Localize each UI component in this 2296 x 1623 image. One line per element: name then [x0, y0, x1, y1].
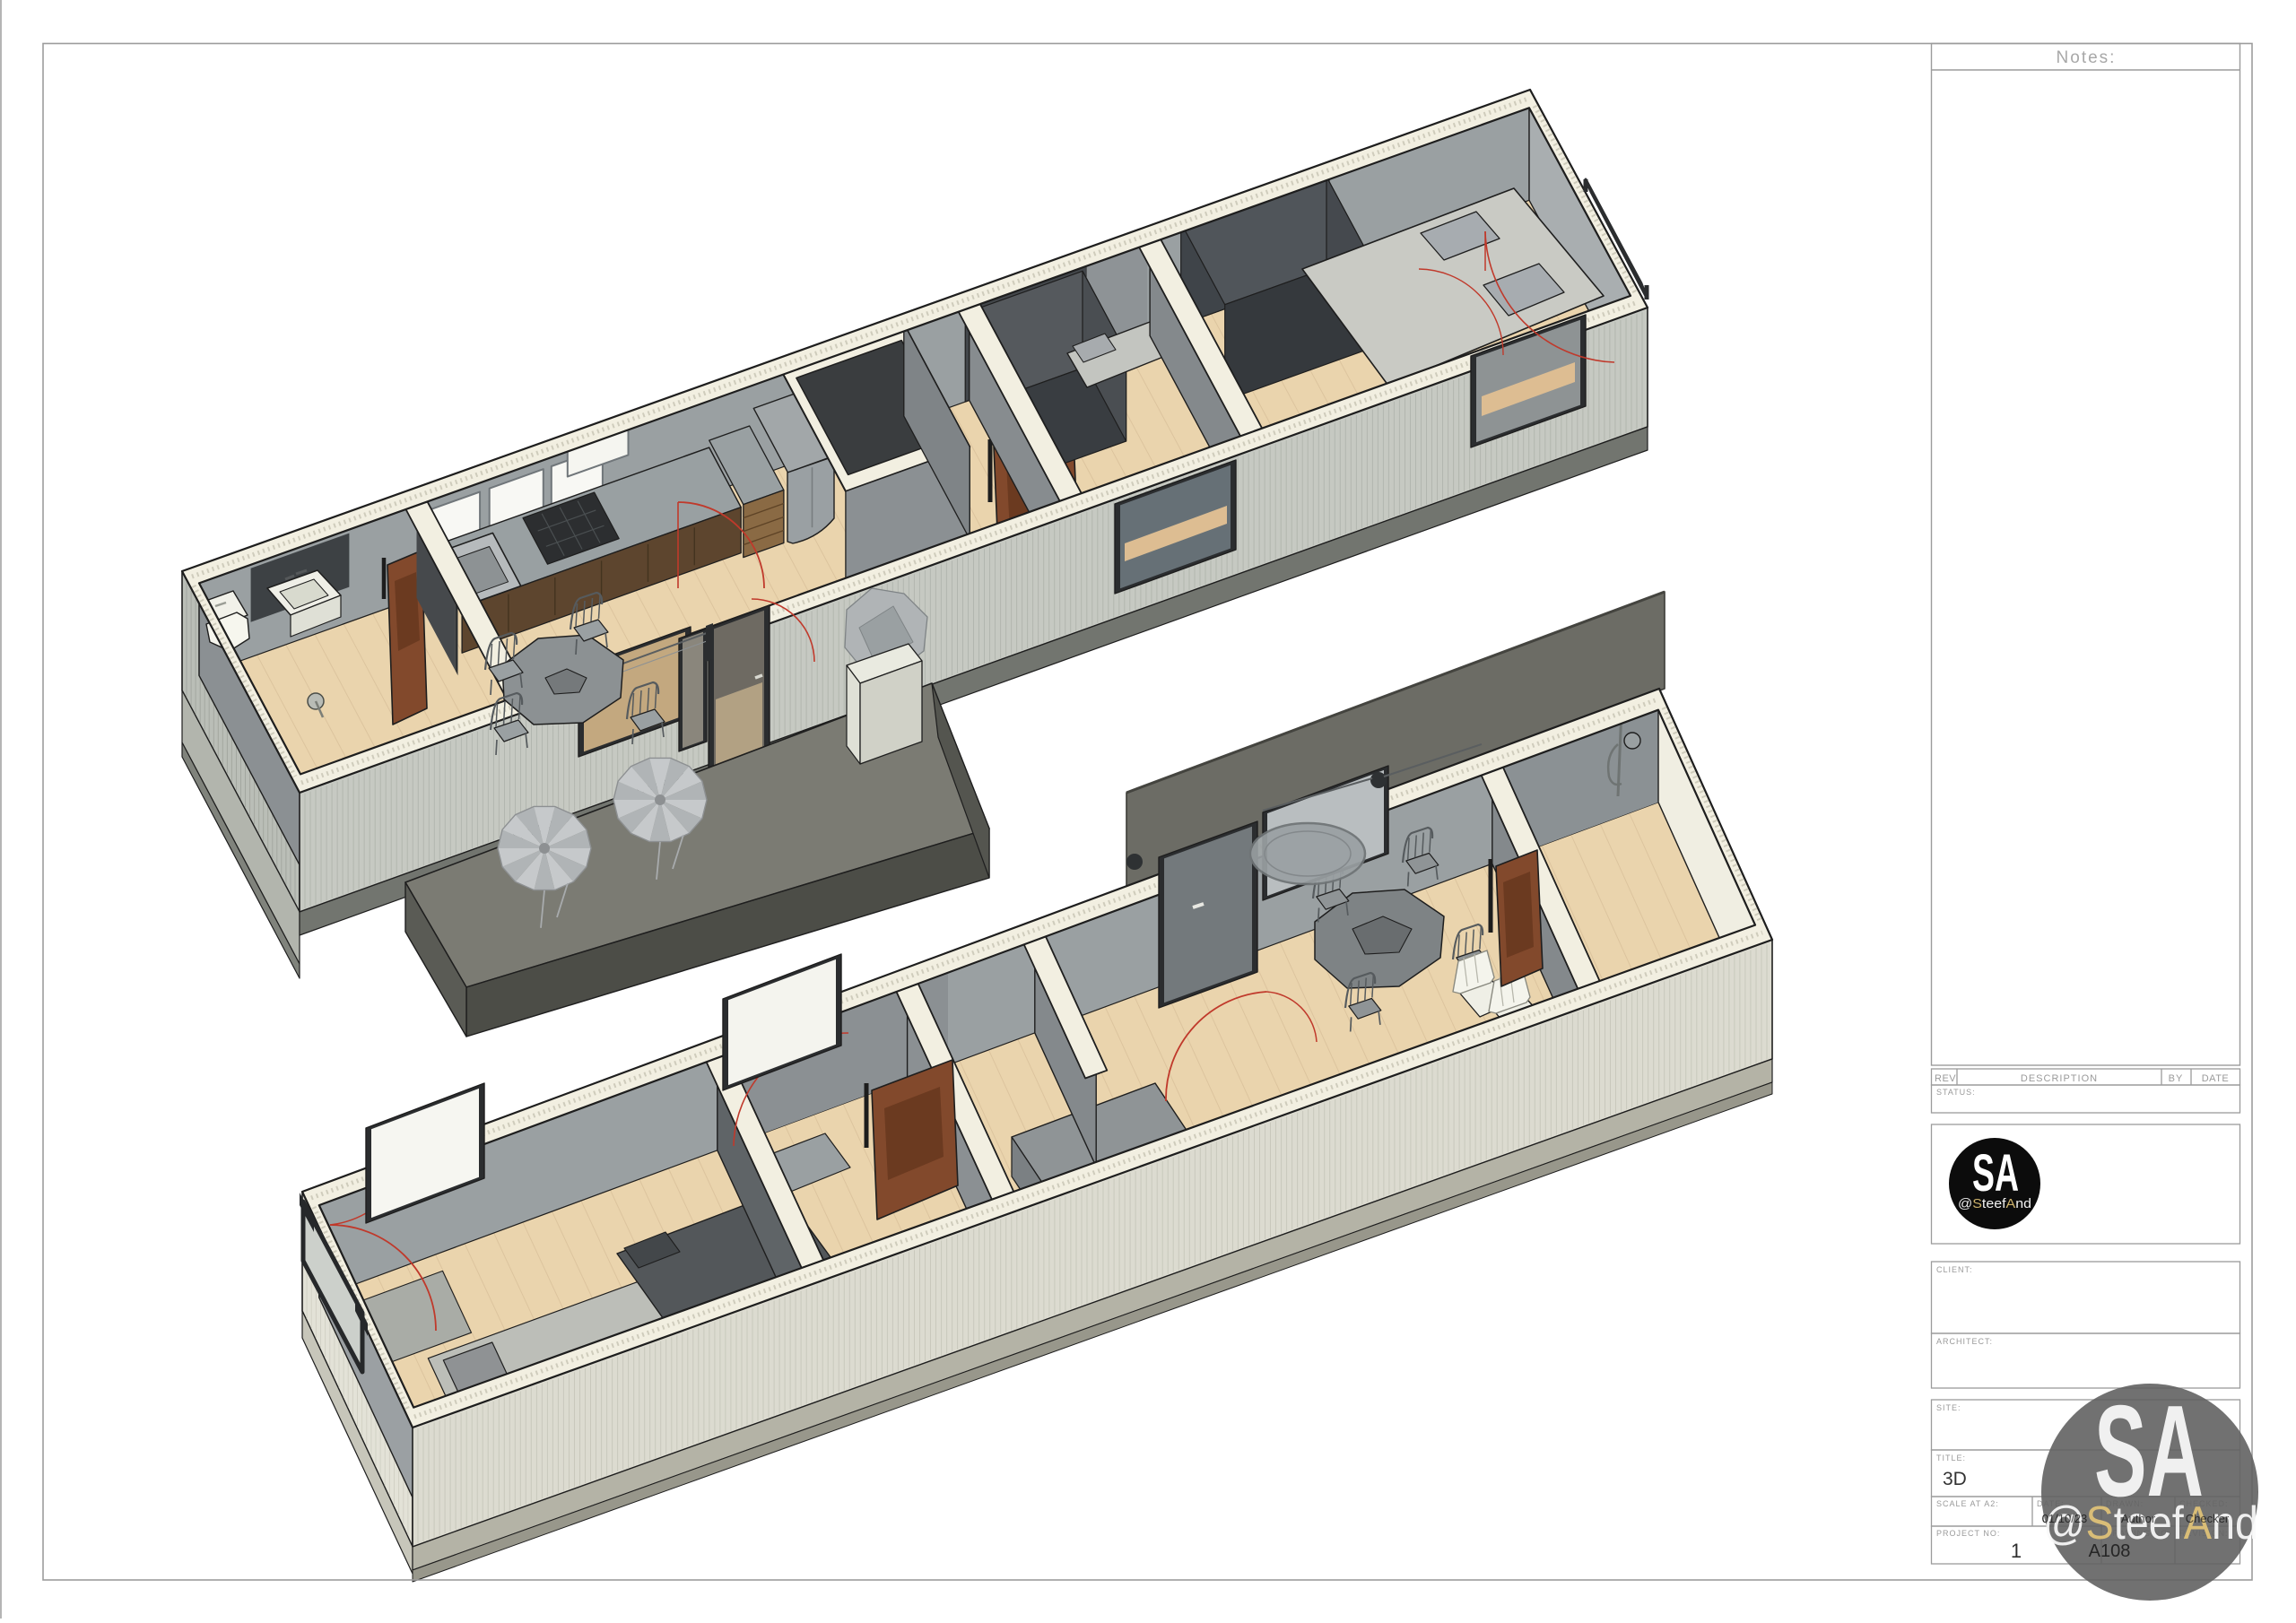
svg-text:Notes:: Notes:: [2057, 48, 2117, 67]
svg-text:SA: SA: [1972, 1144, 2019, 1202]
svg-text:Author: Author: [2121, 1512, 2156, 1525]
svg-text:DESCRIPTION: DESCRIPTION: [2021, 1073, 2098, 1084]
svg-text:SITE:: SITE:: [1936, 1403, 1961, 1412]
svg-text:@SteefAnd: @SteefAnd: [1958, 1196, 2031, 1211]
svg-text:3D: 3D: [1943, 1469, 1967, 1489]
svg-text:TITLE:: TITLE:: [1936, 1454, 1966, 1462]
svg-text:01/10/23: 01/10/23: [2042, 1512, 2088, 1525]
svg-text:REV: REV: [1935, 1073, 1956, 1084]
svg-text:ARCHITECT:: ARCHITECT:: [1936, 1337, 1993, 1346]
svg-text:BY: BY: [2169, 1073, 2184, 1084]
svg-text:SCALE AT A2:: SCALE AT A2:: [1936, 1499, 1999, 1508]
svg-text:PROJECT NO:: PROJECT NO:: [1936, 1529, 2000, 1538]
svg-text:CLIENT:: CLIENT:: [1936, 1265, 1973, 1274]
svg-text:DATE: DATE: [2202, 1073, 2230, 1084]
svg-text:1: 1: [2011, 1540, 2022, 1562]
svg-text:A108: A108: [2089, 1541, 2131, 1561]
svg-text:Checker: Checker: [2186, 1512, 2230, 1525]
svg-text:STATUS:: STATUS:: [1936, 1088, 1976, 1097]
